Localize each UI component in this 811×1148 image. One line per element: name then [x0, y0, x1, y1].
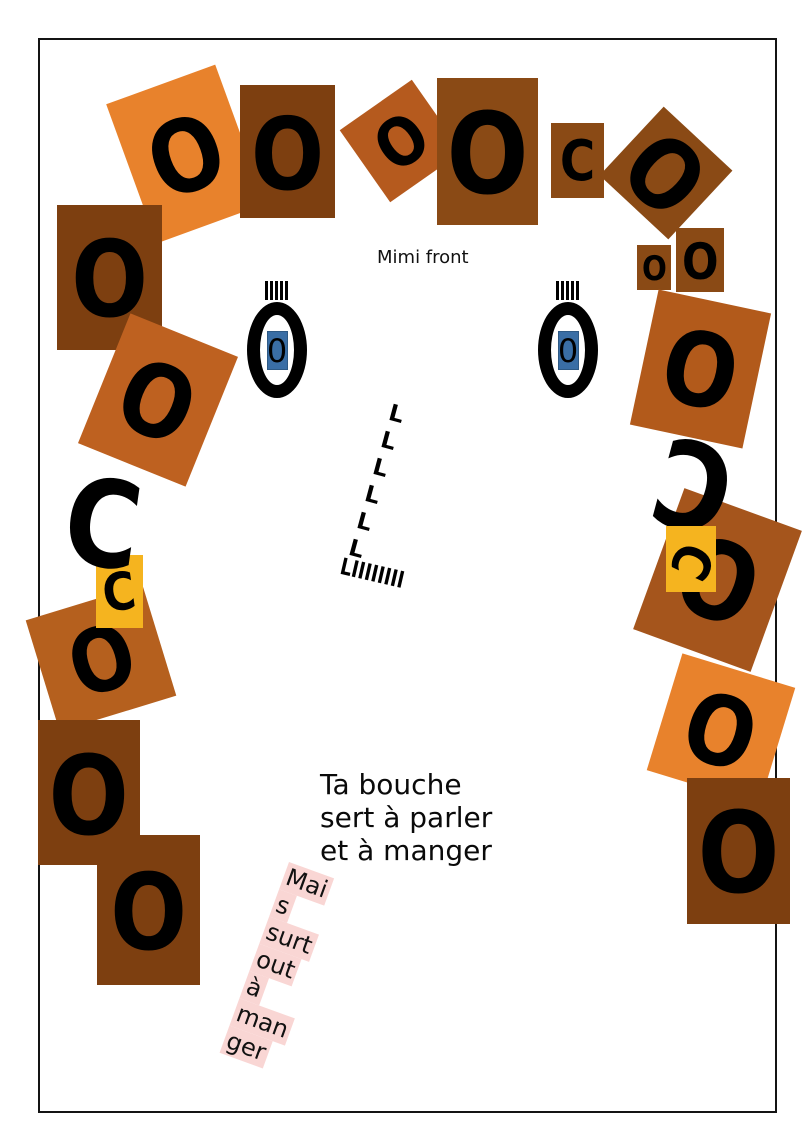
mouth-caption-line3: et à manger	[320, 834, 492, 867]
artwork-page: { "face": { "label": "Mimi front", "pale…	[0, 0, 811, 1148]
nose-layer: LLLLLL	[0, 0, 811, 1148]
mouth-caption: Ta bouche sert à parler et à manger	[320, 768, 492, 867]
mouth-caption-line2: sert à parler	[320, 801, 492, 834]
nose-l-glyph: L	[354, 510, 374, 536]
nose-l-glyph: L	[370, 456, 390, 482]
nose-l-glyph: L	[362, 483, 382, 509]
nose-l-glyph: L	[386, 402, 406, 428]
nose-l-glyph: L	[378, 429, 398, 455]
mouth-caption-line1: Ta bouche	[320, 768, 492, 801]
